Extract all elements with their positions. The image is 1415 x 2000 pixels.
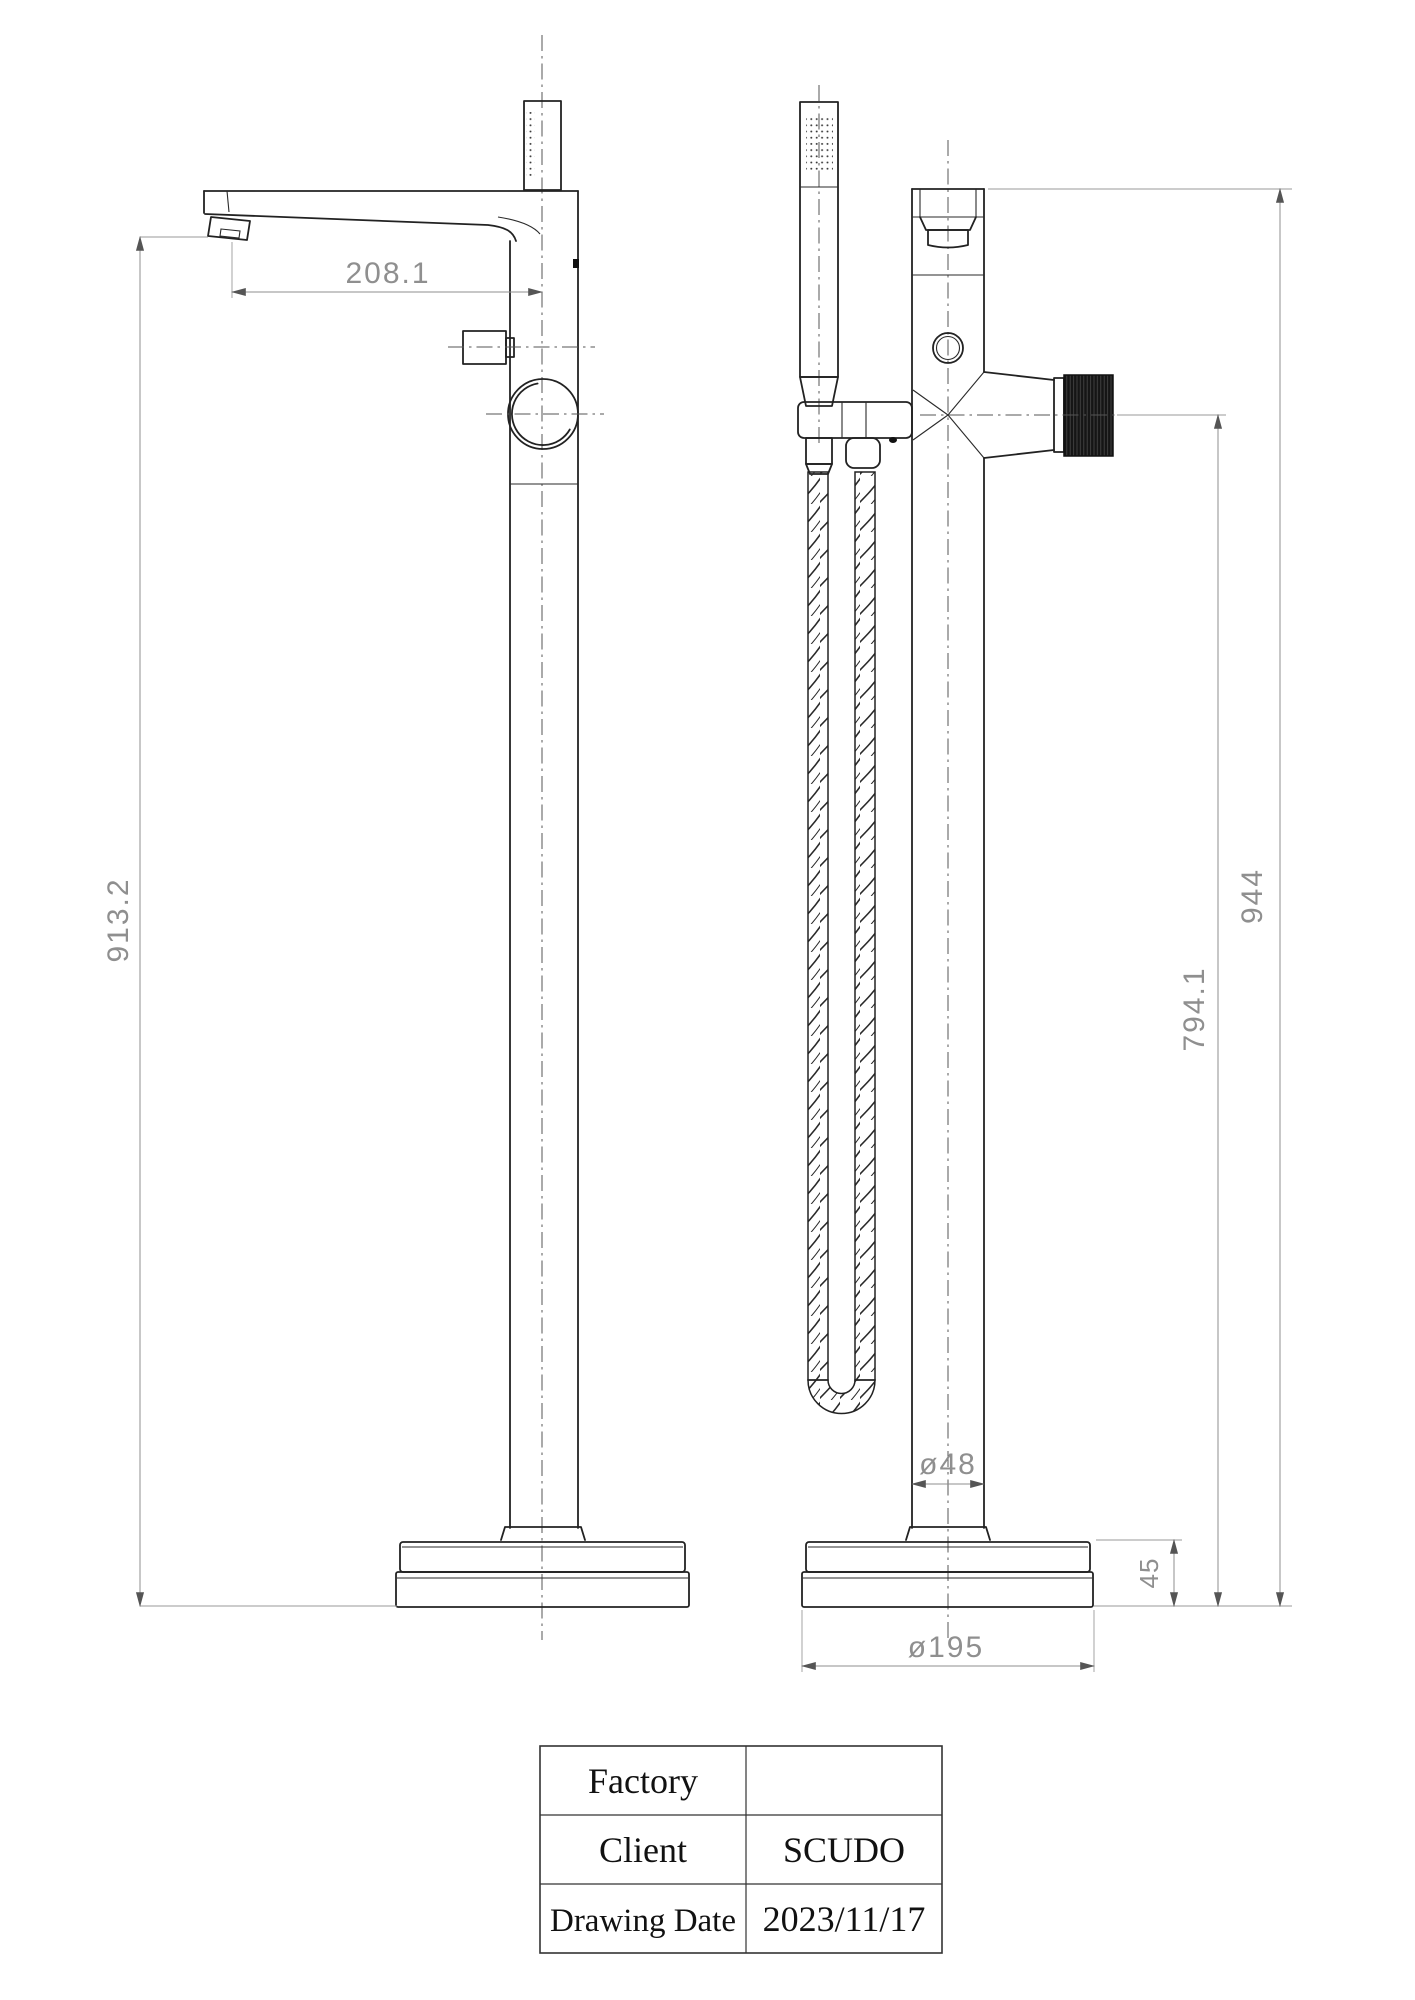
spout-outlet-curve [498, 217, 540, 234]
hose-strand-left [808, 472, 828, 1380]
title-block-label-client: Client [599, 1830, 687, 1870]
handshower-bracket [798, 402, 912, 438]
hose-loop [808, 1380, 875, 1414]
technical-drawing-canvas: 913.2 208.1 944 794.1 ø48 45 ø195 Factor [0, 0, 1415, 2000]
front-view [204, 35, 689, 1640]
bracket-oring [889, 437, 897, 443]
drawing-sheet: 913.2 208.1 944 794.1 ø48 45 ø195 Factor [0, 0, 1415, 2000]
title-block-value-client: SCUDO [783, 1830, 905, 1870]
hose-strand-right [855, 472, 875, 1380]
spout-nozzle-insert [220, 229, 240, 238]
dim-outlet-height-label: 913.2 [102, 877, 135, 962]
dim-handle-height-label: 794.1 [1178, 966, 1211, 1051]
dim-base-height-label: 45 [1134, 1558, 1164, 1589]
side-view [798, 85, 1140, 1640]
title-block: Factory Client SCUDO Drawing Date 2023/1… [540, 1746, 942, 1953]
handshower-spray-face [806, 116, 833, 172]
title-block-value-drawing-date: 2023/11/17 [763, 1899, 926, 1939]
title-block-label-drawing-date: Drawing Date [550, 1903, 736, 1939]
title-block-label-factory: Factory [588, 1761, 698, 1801]
hose-nut-right [846, 438, 880, 468]
dim-overall-height-label: 944 [1236, 868, 1269, 924]
dim-base-diameter-label: ø195 [908, 1631, 984, 1664]
dim-column-diameter-label: ø48 [919, 1448, 977, 1481]
spout-underside [205, 214, 516, 241]
front-handle-knurl [526, 112, 535, 178]
set-screw [573, 259, 579, 268]
dim-spout-reach-label: 208.1 [345, 257, 430, 290]
spout-tip-divider [227, 191, 229, 212]
front-base-trim-ring [501, 1527, 585, 1540]
